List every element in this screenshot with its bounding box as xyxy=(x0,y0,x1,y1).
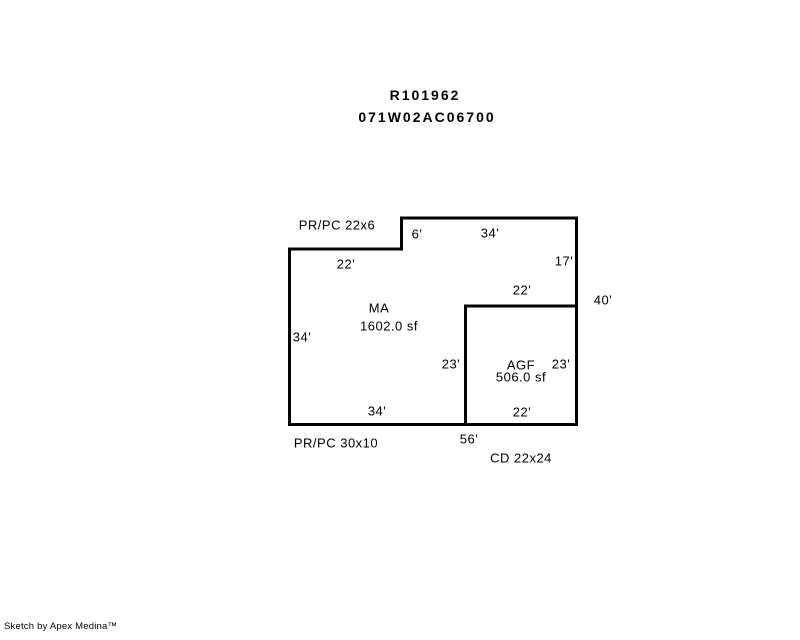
ma-area-code: MA xyxy=(369,301,390,316)
dim-left: 34' xyxy=(293,330,311,345)
dim-agf-top: 22' xyxy=(513,283,531,298)
dim-upper-left: 22' xyxy=(337,257,355,272)
sketch-credit: Sketch by Apex Medina™ xyxy=(4,621,117,632)
ma-area-size: 1602.0 sf xyxy=(360,319,418,334)
sketch-page: R101962 071W02AC06700 PR/PC 22x6 PR/PC 3… xyxy=(0,0,800,640)
dim-right-total: 40' xyxy=(594,293,612,308)
carport-label: CD 22x24 xyxy=(490,451,552,466)
dim-agf-right: 23' xyxy=(552,357,570,372)
main-area-outline xyxy=(290,218,577,425)
dim-agf-bottom: 22' xyxy=(513,405,531,420)
dim-top: 34' xyxy=(481,226,499,241)
porch-top-label: PR/PC 22x6 xyxy=(299,218,376,233)
dim-bottom-total: 56' xyxy=(460,432,478,447)
dim-ma-bottom: 34' xyxy=(368,404,386,419)
dim-right-upper: 17' xyxy=(555,254,573,269)
dim-agf-left: 23' xyxy=(442,357,460,372)
porch-bottom-label: PR/PC 30x10 xyxy=(294,436,378,451)
dim-top-notch: 6' xyxy=(412,227,423,242)
agf-area-size: 506.0 sf xyxy=(496,370,546,385)
